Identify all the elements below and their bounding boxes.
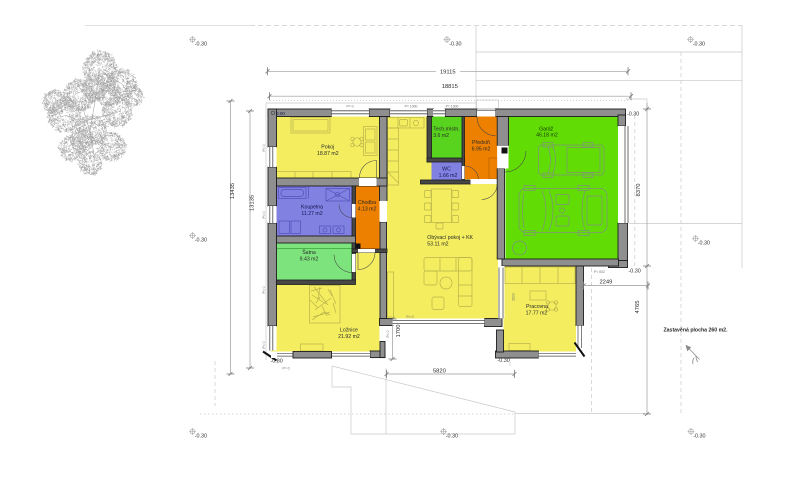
svg-text:-0.80: -0.80 [271,359,283,365]
svg-text:6.95 m2: 6.95 m2 [472,147,491,153]
svg-text:-0.30: -0.30 [627,112,639,118]
svg-text:P= 0: P= 0 [262,211,266,218]
svg-text:53.11 m2: 53.11 m2 [427,242,448,248]
svg-text:46.18 m2: 46.18 m2 [536,133,558,139]
svg-text:8370: 8370 [636,184,642,197]
svg-text:18815: 18815 [442,84,458,90]
svg-text:-0.30: -0.30 [446,433,458,439]
svg-text:P= 1000: P= 1000 [405,104,418,108]
svg-text:P= 002: P= 002 [594,270,605,274]
svg-text:P= 0: P= 0 [282,367,289,371]
svg-text:11.27 m2: 11.27 m2 [301,211,322,217]
svg-text:-0.30: -0.30 [449,41,461,47]
svg-text:1.66 m2: 1.66 m2 [439,173,458,179]
svg-text:Předsíň: Předsíň [472,140,490,146]
svg-text:17.77 m2: 17.77 m2 [526,310,548,316]
svg-text:Koupelna: Koupelna [301,205,323,211]
svg-text:19115: 19115 [440,70,456,76]
svg-text:13135: 13135 [250,195,256,211]
svg-text:P= 0: P= 0 [406,315,413,319]
svg-text:P= 0: P= 0 [386,330,390,337]
svg-text:-0.30: -0.30 [195,41,207,47]
svg-text:Pokoj: Pokoj [321,145,334,151]
svg-text:-0.30: -0.30 [195,433,207,439]
svg-text:P= 0: P= 0 [262,341,266,348]
svg-text:-0.30: -0.30 [698,240,710,246]
svg-text:-0.30: -0.30 [693,41,705,47]
svg-text:Garáž: Garáž [539,126,554,132]
svg-text:4765: 4765 [635,301,641,314]
svg-text:2249: 2249 [599,279,612,285]
svg-text:4.13 m2: 4.13 m2 [358,206,377,212]
svg-text:Zastavěná plocha 260 m2.: Zastavěná plocha 260 m2. [664,328,729,334]
svg-text:-0.30: -0.30 [195,237,207,243]
svg-text:Chodba: Chodba [358,200,376,206]
svg-text:5820: 5820 [433,369,446,375]
svg-text:13435: 13435 [230,183,236,199]
svg-text:-0.30: -0.30 [629,269,641,275]
svg-text:P= 1000: P= 1000 [446,104,459,108]
svg-text:P= 0: P= 0 [262,286,266,293]
svg-text:1700: 1700 [396,325,402,338]
svg-text:0.00: 0.00 [276,111,285,116]
svg-text:3.6 m2: 3.6 m2 [433,133,449,139]
svg-text:-0.30: -0.30 [693,433,705,439]
svg-text:Tech.místn.: Tech.místn. [433,127,460,133]
svg-text:2200: 2200 [512,293,516,301]
svg-text:Pracovna: Pracovna [526,304,548,310]
svg-text:Obývací pokoj + KK: Obývací pokoj + KK [427,235,473,241]
svg-text:Ložnice: Ložnice [340,327,358,333]
svg-text:9.43 m2: 9.43 m2 [300,257,319,263]
svg-text:-0.30: -0.30 [498,358,510,364]
svg-text:P= 0: P= 0 [262,144,266,151]
svg-text:P= 0: P= 0 [346,104,353,108]
svg-text:21.92 m2: 21.92 m2 [338,334,360,340]
svg-text:WC: WC [442,167,451,173]
svg-text:Šatna: Šatna [302,249,316,256]
svg-text:18.87 m2: 18.87 m2 [317,151,339,157]
